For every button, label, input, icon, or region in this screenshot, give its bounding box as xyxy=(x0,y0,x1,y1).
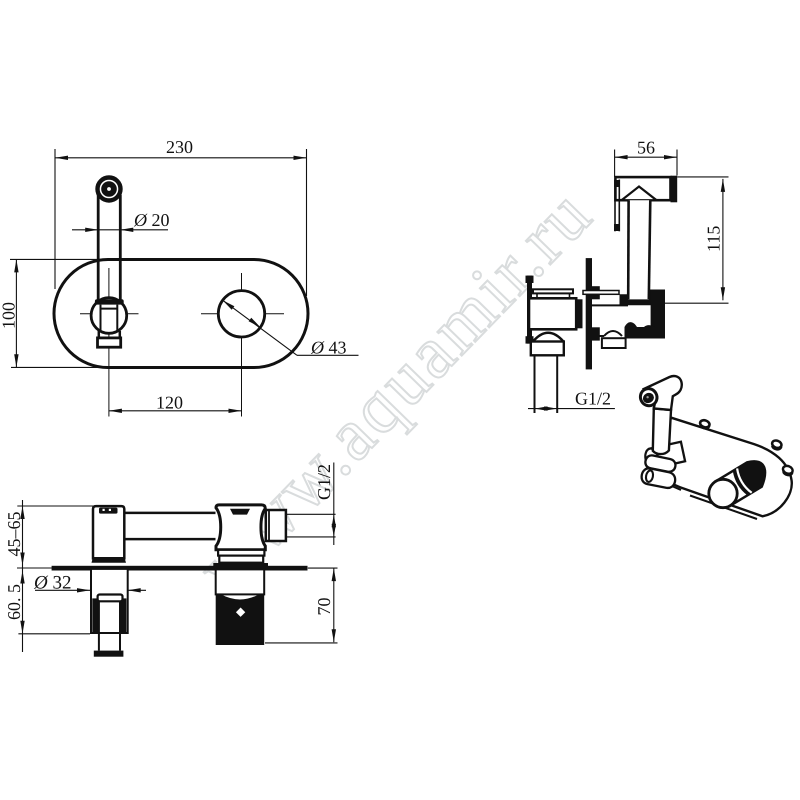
svg-text:120: 120 xyxy=(156,393,183,413)
svg-text:115: 115 xyxy=(704,226,724,252)
svg-text:100: 100 xyxy=(0,302,19,329)
svg-text:56: 56 xyxy=(637,138,655,158)
svg-text:G1/2: G1/2 xyxy=(575,389,611,409)
svg-text:G1/2: G1/2 xyxy=(314,464,334,500)
svg-text:Ø 20: Ø 20 xyxy=(133,210,170,230)
svg-text:45–65: 45–65 xyxy=(4,512,24,557)
svg-text:60. 5: 60. 5 xyxy=(4,584,24,620)
svg-text:70: 70 xyxy=(314,598,334,616)
svg-text:230: 230 xyxy=(166,137,193,157)
svg-text:Ø 43: Ø 43 xyxy=(310,338,347,358)
